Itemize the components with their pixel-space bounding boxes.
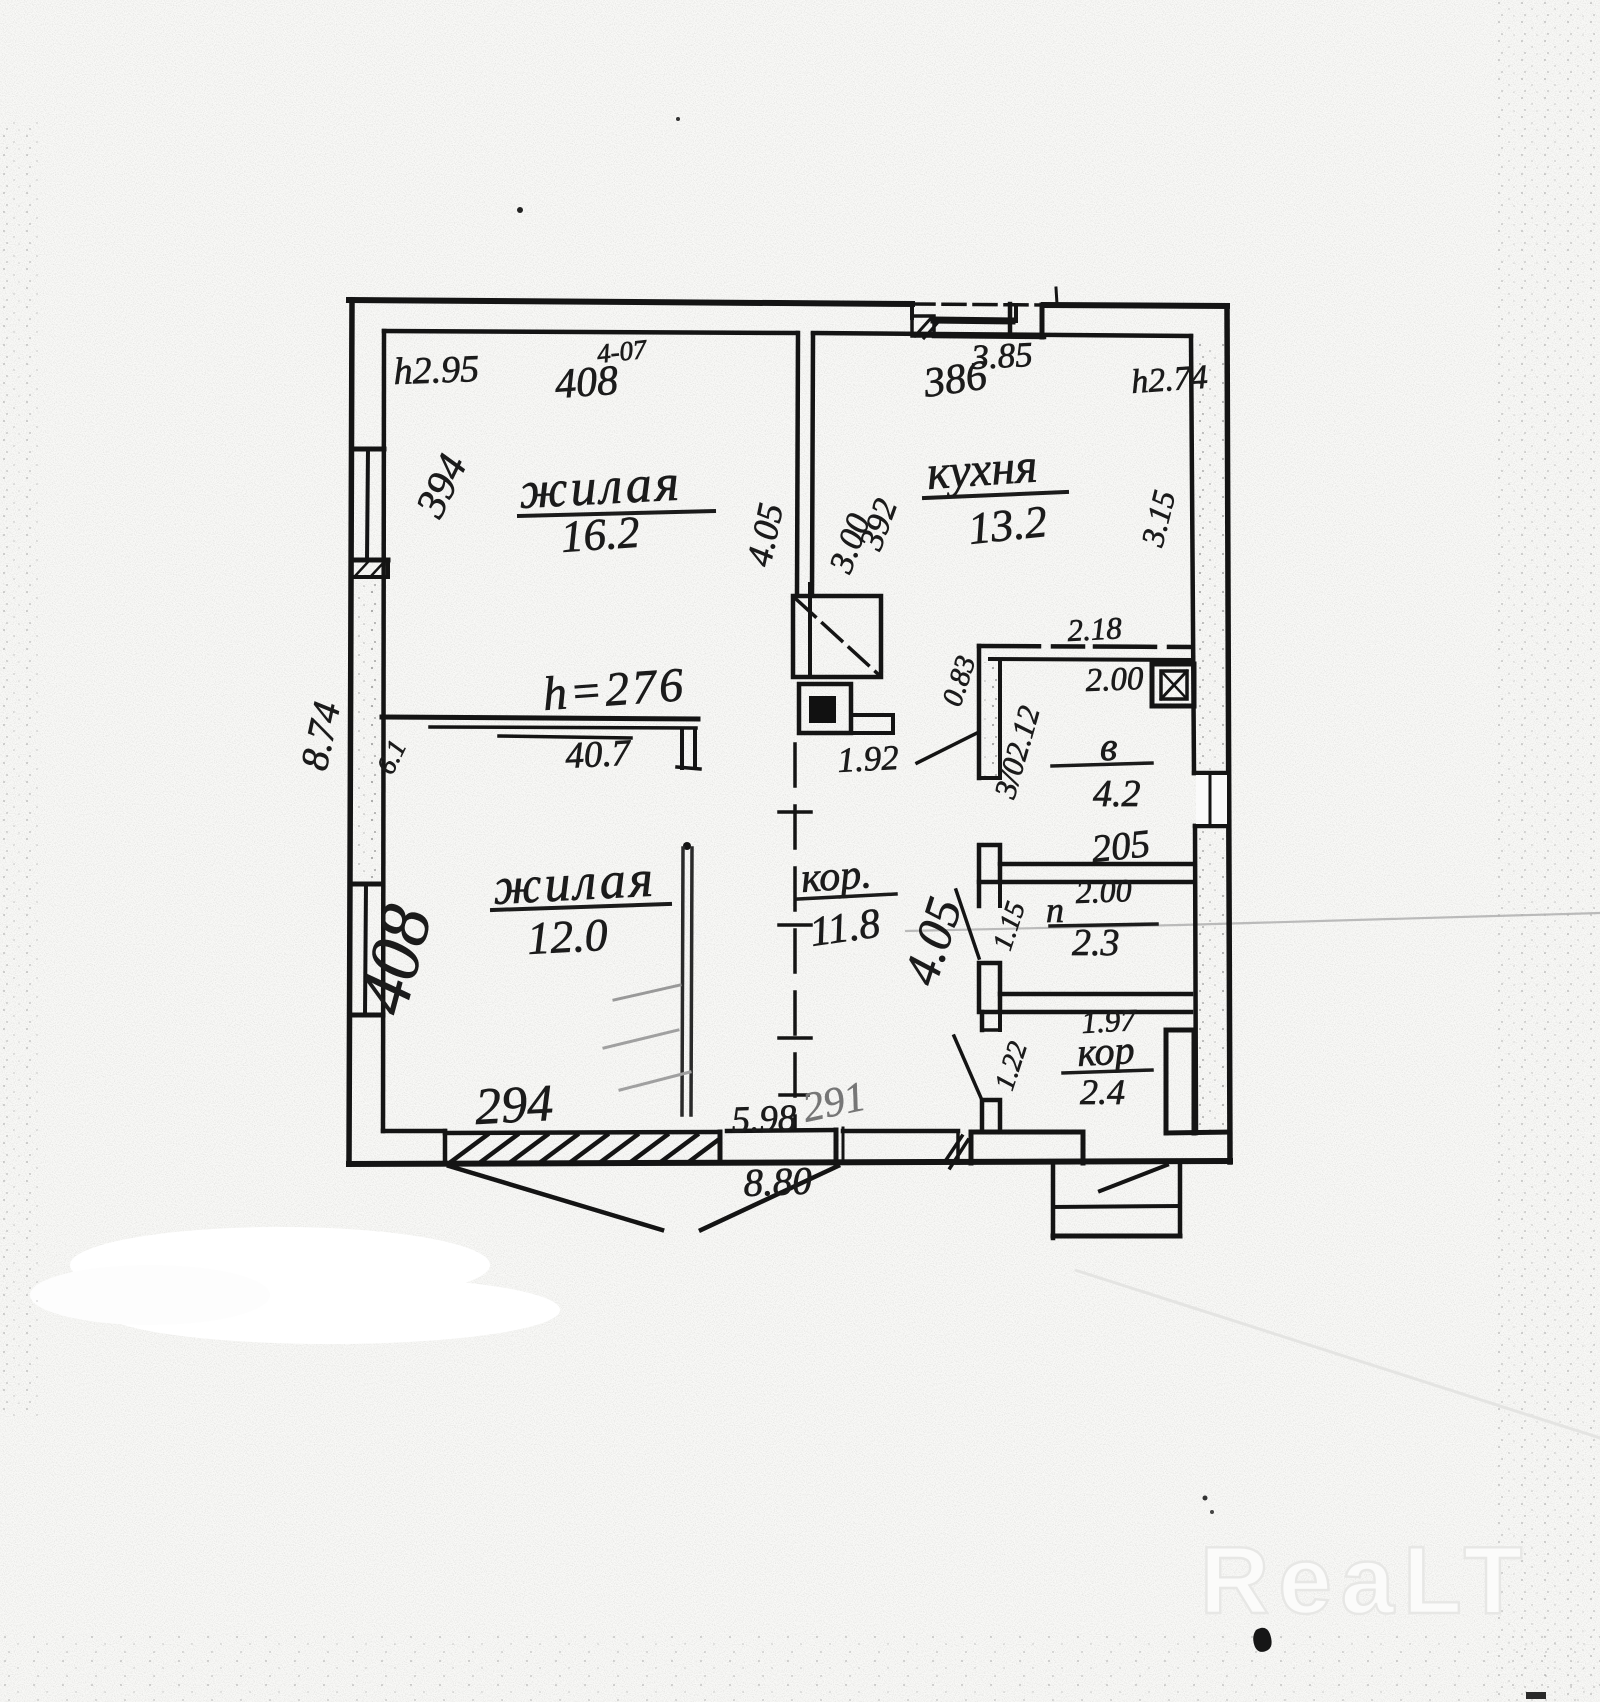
- svg-text:3.85: 3.85: [969, 335, 1033, 377]
- svg-text:40.7: 40.7: [564, 733, 632, 777]
- svg-text:кор: кор: [1076, 1027, 1135, 1075]
- svg-text:2.00: 2.00: [1085, 661, 1144, 699]
- svg-text:ReaLT: ReaLT: [1200, 1527, 1531, 1634]
- svg-text:2.00: 2.00: [1075, 872, 1132, 910]
- svg-text:2.18: 2.18: [1067, 610, 1124, 648]
- svg-text:в: в: [1100, 724, 1117, 769]
- svg-text:2.3: 2.3: [1072, 922, 1120, 964]
- svg-text:1.92: 1.92: [836, 738, 899, 780]
- svg-text:h=276: h=276: [541, 658, 688, 721]
- svg-text:h2.95: h2.95: [393, 348, 480, 393]
- svg-text:2.4: 2.4: [1080, 1072, 1125, 1112]
- svg-text:294: 294: [474, 1075, 555, 1136]
- svg-text:h2.74: h2.74: [1130, 359, 1209, 401]
- svg-text:п: п: [1046, 890, 1064, 930]
- svg-text:5.98: 5.98: [731, 1098, 798, 1141]
- svg-text:11.8: 11.8: [807, 901, 883, 956]
- svg-text:4.2: 4.2: [1093, 773, 1141, 815]
- svg-text:205: 205: [1089, 822, 1152, 871]
- svg-text:8.80: 8.80: [743, 1160, 813, 1205]
- svg-text:кухня: кухня: [925, 439, 1039, 500]
- svg-text:13.2: 13.2: [966, 496, 1050, 554]
- svg-text:408: 408: [553, 358, 619, 408]
- svg-text:12.0: 12.0: [526, 909, 609, 964]
- svg-text:16.2: 16.2: [559, 507, 641, 562]
